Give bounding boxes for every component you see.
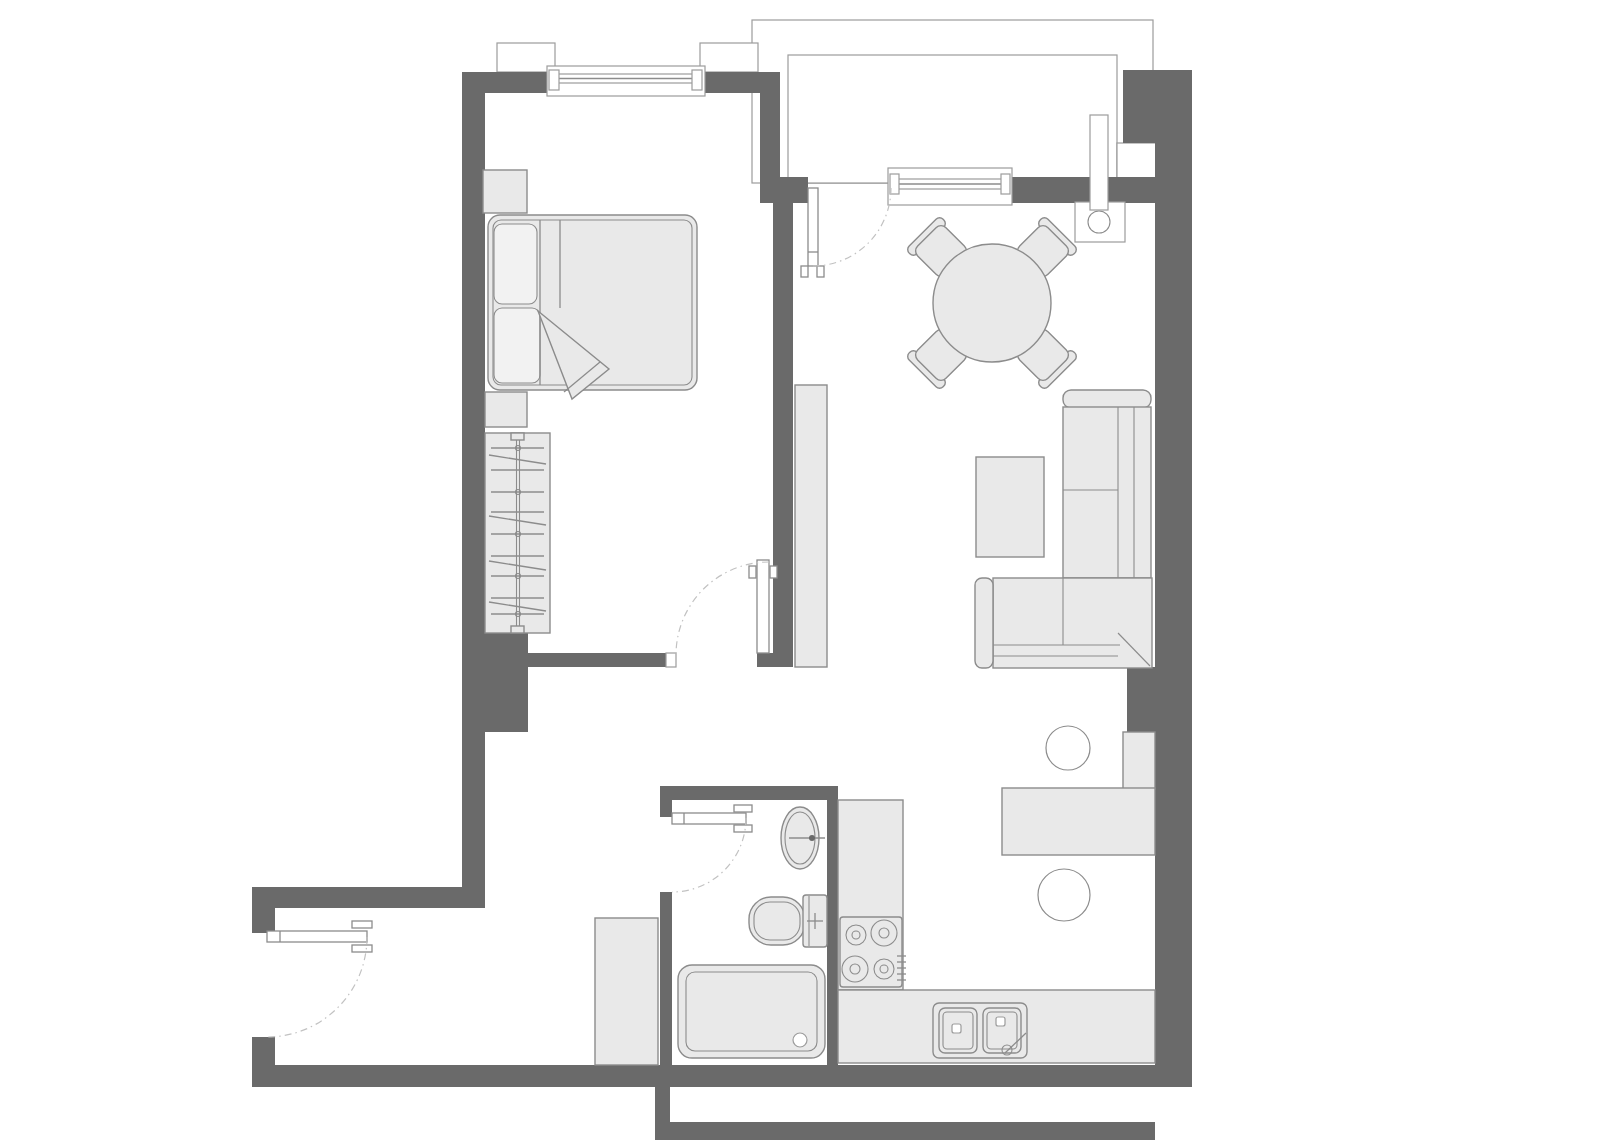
wall-right [1155, 70, 1192, 1087]
kitchen-sink-drain [952, 1024, 961, 1033]
floor-plan-drawing [0, 0, 1619, 1145]
wall-bathroom-top [660, 786, 838, 800]
coffee-table [976, 457, 1044, 557]
bar-stool-upper [1046, 726, 1090, 770]
wall-lower-balcony-left [655, 1087, 670, 1140]
sofa-body-vertical [1063, 407, 1151, 578]
bedroom-window-cap-right [692, 70, 702, 90]
bar-counter-wall-part [1123, 732, 1155, 789]
balcony-door-stop-left [801, 266, 808, 277]
wall-right-mid-chunk [1127, 667, 1155, 732]
tv-cabinet [795, 385, 827, 667]
wall-bathroom-left [660, 892, 672, 1065]
wall-entry-left-lower [252, 1037, 275, 1065]
wall-lower-balcony-bottom [655, 1122, 1155, 1140]
bedroom-door-stop-right [770, 566, 777, 578]
bathroom-door-stop-upper [734, 805, 752, 812]
balcony-inner-outline [788, 55, 1117, 183]
wardrobe-rail-cap-bottom [511, 626, 524, 633]
kitchen-sink-drain [996, 1017, 1005, 1026]
entry-cabinet [595, 918, 658, 1065]
wall-living-top-right [1012, 177, 1157, 203]
sofa-armrest-top [1063, 390, 1151, 408]
entry-door-stop-upper [352, 921, 372, 928]
bar-stool-lower [1038, 869, 1090, 921]
bathroom-door-leaf [672, 813, 746, 824]
wall-bottom-main [252, 1065, 1192, 1087]
dining-table [933, 244, 1051, 362]
nightstand-lower [485, 392, 527, 427]
wall-entry-top [252, 887, 485, 908]
bathroom-door-stop-lower [734, 825, 752, 832]
wall-bedroom-top-right [700, 72, 780, 93]
sofa-armrest-left [975, 578, 993, 668]
wall-bedroom-left [462, 93, 485, 633]
wall-bathroom-left-stub [660, 800, 672, 817]
entry-door-stop-lower [352, 945, 372, 952]
toilet-bowl [749, 897, 805, 945]
sofa-body-bottom [993, 578, 1152, 668]
wall-partition-lower [773, 203, 793, 653]
wall-entry-left-upper [252, 908, 275, 933]
duct-shaft [1090, 115, 1108, 210]
wall-bathroom-right [827, 800, 838, 1065]
bedroom-window-ledge-right [700, 43, 758, 72]
wall-living-top-left-stub [760, 177, 808, 203]
balcony-door-swing-arc [813, 188, 891, 266]
balcony-door-stop-right [817, 266, 824, 277]
bedroom-bottom-jamb-cap [666, 653, 676, 667]
bedroom-door-stop-left [749, 566, 756, 578]
wall-top-right-block [1123, 70, 1157, 143]
bed-pillow-bottom [494, 308, 540, 383]
bathroom-sink-faucet-dot [809, 835, 815, 841]
nightstand-upper [483, 170, 527, 213]
bar-counter-main [1002, 788, 1155, 855]
wall-left-block [462, 633, 528, 732]
bed-pillow-top [494, 224, 537, 304]
wall-recess-outline [1117, 143, 1157, 180]
wall-bedroom-bottom [528, 653, 668, 667]
balcony-door-leaf [808, 188, 818, 266]
wall-left-lower [462, 732, 485, 887]
floor-plan-page [0, 0, 1619, 1145]
bedroom-window-cap-left [549, 70, 559, 90]
wall-bedroom-bottom-stub [757, 653, 793, 667]
bedroom-window-ledge-left [497, 43, 555, 72]
bathtub-drain [793, 1033, 807, 1047]
living-window-cap-right [1001, 174, 1010, 194]
wall-partition-upper [760, 93, 780, 177]
bedroom-door-leaf [757, 560, 769, 653]
wall-bedroom-top-left [462, 72, 553, 93]
kitchen-sink-bowl-right [983, 1008, 1021, 1053]
entry-door-leaf [267, 931, 367, 942]
wardrobe-rail-cap-top [511, 433, 524, 440]
